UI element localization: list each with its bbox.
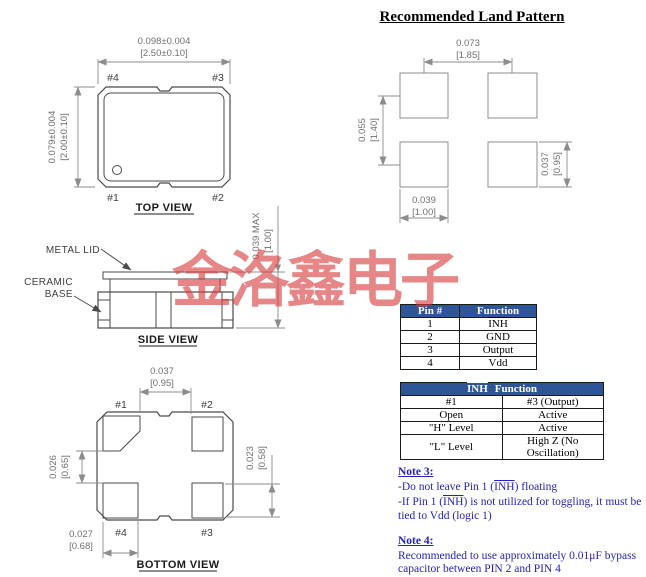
- inh-col2: Active: [502, 409, 604, 422]
- bottom-view-left-extension-lines: [76, 451, 103, 483]
- land-pad-bottom-left: [400, 142, 448, 187]
- bottom-view-top-dim-in: 0.037: [150, 366, 174, 377]
- top-view-width-dim-in: 0.098±0.004: [138, 36, 191, 47]
- pin-number: 2: [401, 331, 460, 344]
- inh-col2: Active: [502, 422, 604, 435]
- metal-lid-leader: [101, 249, 131, 270]
- land-pattern-top-dim-in: 0.073: [456, 38, 480, 49]
- notes-section: Note 3: -Do not leave Pin 1 (INH) floati…: [398, 466, 646, 577]
- bottom-view-pin2-label: #2: [201, 399, 213, 411]
- bottom-view-top-dim-mm: [0.95]: [150, 378, 174, 389]
- inh-col1: "L" Level: [401, 435, 503, 460]
- table-row: 1 INH: [401, 318, 537, 331]
- note4-text: Recommended to use approximately 0.01μF …: [398, 550, 646, 576]
- bottom-view-pin3-label: #3: [201, 527, 213, 539]
- pin-table-header-pin: Pin #: [401, 305, 460, 318]
- inh-table-title: INHFunction: [401, 383, 604, 396]
- side-view-lid-sides: [110, 279, 220, 292]
- inh-function-table: INHFunction #1 #3 (Output) Open Active "…: [400, 382, 604, 460]
- side-view-title: SIDE VIEW: [138, 334, 199, 346]
- top-view-height-extension-lines: [74, 87, 95, 187]
- side-view-dim-mm: [1.00]: [263, 229, 274, 253]
- inh-overline-text: INH: [488, 318, 508, 330]
- note3-line1: -Do not leave Pin 1 (INH) floating: [398, 481, 646, 494]
- bottom-view-right-dim-mm: [0.58]: [257, 446, 268, 470]
- pin-function: Output: [460, 344, 537, 357]
- inh-col2: #3 (Output): [502, 396, 604, 409]
- inh-overline-text: INH: [443, 496, 463, 508]
- top-view-pin3-label: #3: [212, 72, 224, 84]
- bottom-view-pin4-label: #4: [115, 527, 127, 539]
- top-view-title: TOP VIEW: [136, 202, 193, 214]
- land-pattern-right-dim-in: 0.037: [540, 152, 551, 176]
- land-pattern-title: Recommended Land Pattern: [379, 9, 565, 26]
- bottom-view-pad1: [103, 416, 140, 451]
- note3-line2: -If Pin 1 (INH) is not utilized for togg…: [398, 496, 646, 522]
- bottom-view-pad3: [192, 483, 223, 518]
- inh-overline-text: INH: [494, 481, 514, 493]
- land-pattern-left-dim-in: 0.055: [357, 118, 368, 142]
- metal-lid-label: METAL LID: [46, 245, 100, 256]
- side-view-base-details: [98, 292, 233, 328]
- top-view-height-dim-in: 0.079±0.004: [47, 111, 58, 164]
- side-view: METAL LID CERAMIC BASE 0.039 MAX [1.00] …: [24, 206, 285, 346]
- top-view-lid-outline: [104, 93, 224, 181]
- inh-col1: #1: [401, 396, 503, 409]
- inh-col1: "H" Level: [401, 422, 503, 435]
- land-pattern: 0.073 [1.85] 0.055 [1.40] 0.037 [0.95] 0…: [357, 38, 572, 223]
- pin-number: 1: [401, 318, 460, 331]
- pin-function: GND: [460, 331, 537, 344]
- bottom-view-bottom-dim-mm: [0.68]: [69, 541, 93, 552]
- land-pattern-bottom-dim-in: 0.039: [412, 195, 436, 206]
- top-view: #4 #3 #1 #2 0.098±0.004 [2.50±0.10] 0.07…: [47, 36, 230, 214]
- pin-function: Vdd: [460, 357, 537, 370]
- inh-col2: High Z (No Oscillation): [502, 435, 604, 460]
- pin-table-header-function: Function: [460, 305, 537, 318]
- inh-table-header-row: INHFunction: [401, 383, 604, 396]
- top-view-package-outline: [98, 87, 230, 187]
- land-pattern-bottom-dim-mm: [1.00]: [412, 207, 436, 218]
- top-view-width-dim-mm: [2.50±0.10]: [140, 48, 187, 59]
- top-view-pin2-label: #2: [212, 192, 224, 204]
- side-view-dim-in: 0.039 MAX: [251, 212, 262, 260]
- table-row: 3 Output: [401, 344, 537, 357]
- bottom-view-left-dim-mm: [0.65]: [60, 455, 71, 479]
- note4-title: Note 4:: [398, 535, 646, 548]
- side-view-lid-top: [103, 272, 227, 279]
- table-row: 4 Vdd: [401, 357, 537, 370]
- pin-function-table: Pin # Function 1 INH 2 GND 3 Output 4 Vd…: [400, 304, 537, 370]
- ceramic-label-line1: CERAMIC: [24, 277, 73, 288]
- bottom-view-right-dim-in: 0.023: [245, 446, 256, 470]
- note3-title: Note 3:: [398, 466, 646, 479]
- land-pattern-right-dim-mm: [0.95]: [552, 152, 563, 176]
- note3-line2-pre: -If Pin 1 (: [398, 496, 443, 508]
- side-view-dim-arrow-top: [275, 265, 281, 273]
- top-view-pin4-label: #4: [107, 72, 119, 84]
- datasheet-page: #4 #3 #1 #2 0.098±0.004 [2.50±0.10] 0.07…: [0, 0, 646, 577]
- table-row: "H" Level Active: [401, 422, 604, 435]
- inh-title-rest: Function: [495, 383, 537, 395]
- side-view-base: [98, 292, 233, 328]
- table-row: 2 GND: [401, 331, 537, 344]
- note3-line1-post: ) floating: [515, 481, 557, 493]
- inh-col1: Open: [401, 409, 503, 422]
- bottom-view-pad4: [103, 483, 138, 518]
- land-pad-top-left: [400, 73, 448, 118]
- table-row: "L" Level High Z (No Oscillation): [401, 435, 604, 460]
- land-pad-bottom-right: [488, 142, 537, 187]
- pin-number: 3: [401, 344, 460, 357]
- land-pattern-top-dim-mm: [1.85]: [456, 50, 480, 61]
- land-pad-top-right: [488, 73, 537, 118]
- side-view-dim-extension-lines: [230, 272, 285, 328]
- table-row: #1 #3 (Output): [401, 396, 604, 409]
- bottom-view-pad2: [192, 417, 223, 451]
- bottom-view-title: BOTTOM VIEW: [136, 559, 219, 571]
- pin-table-header-row: Pin # Function: [401, 305, 537, 318]
- bottom-view: #1 #2 #4 #3 0.037 [0.95] 0.026 [0.65] 0.…: [48, 366, 280, 571]
- land-pattern-left-dim-mm: [1.40]: [369, 118, 380, 142]
- note3-line1-pre: -Do not leave Pin 1 (: [398, 481, 494, 493]
- ceramic-base-leader: [74, 296, 101, 312]
- bottom-view-package-outline: [97, 412, 233, 520]
- inh-overline-text: INH: [467, 383, 488, 395]
- land-pattern-left-extension-lines: [378, 96, 400, 165]
- table-row: Open Active: [401, 409, 604, 422]
- top-view-pin1-label: #1: [107, 192, 119, 204]
- ceramic-label-line2: BASE: [45, 289, 73, 300]
- top-view-height-dim-mm: [2.00±0.10]: [59, 113, 70, 160]
- pin1-indicator-dot: [113, 166, 122, 175]
- pin-function: INH: [460, 318, 537, 331]
- bottom-view-pin1-label: #1: [115, 399, 127, 411]
- bottom-view-left-dim-in: 0.026: [48, 455, 59, 479]
- pin-number: 4: [401, 357, 460, 370]
- bottom-view-bottom-dim-in: 0.027: [69, 529, 93, 540]
